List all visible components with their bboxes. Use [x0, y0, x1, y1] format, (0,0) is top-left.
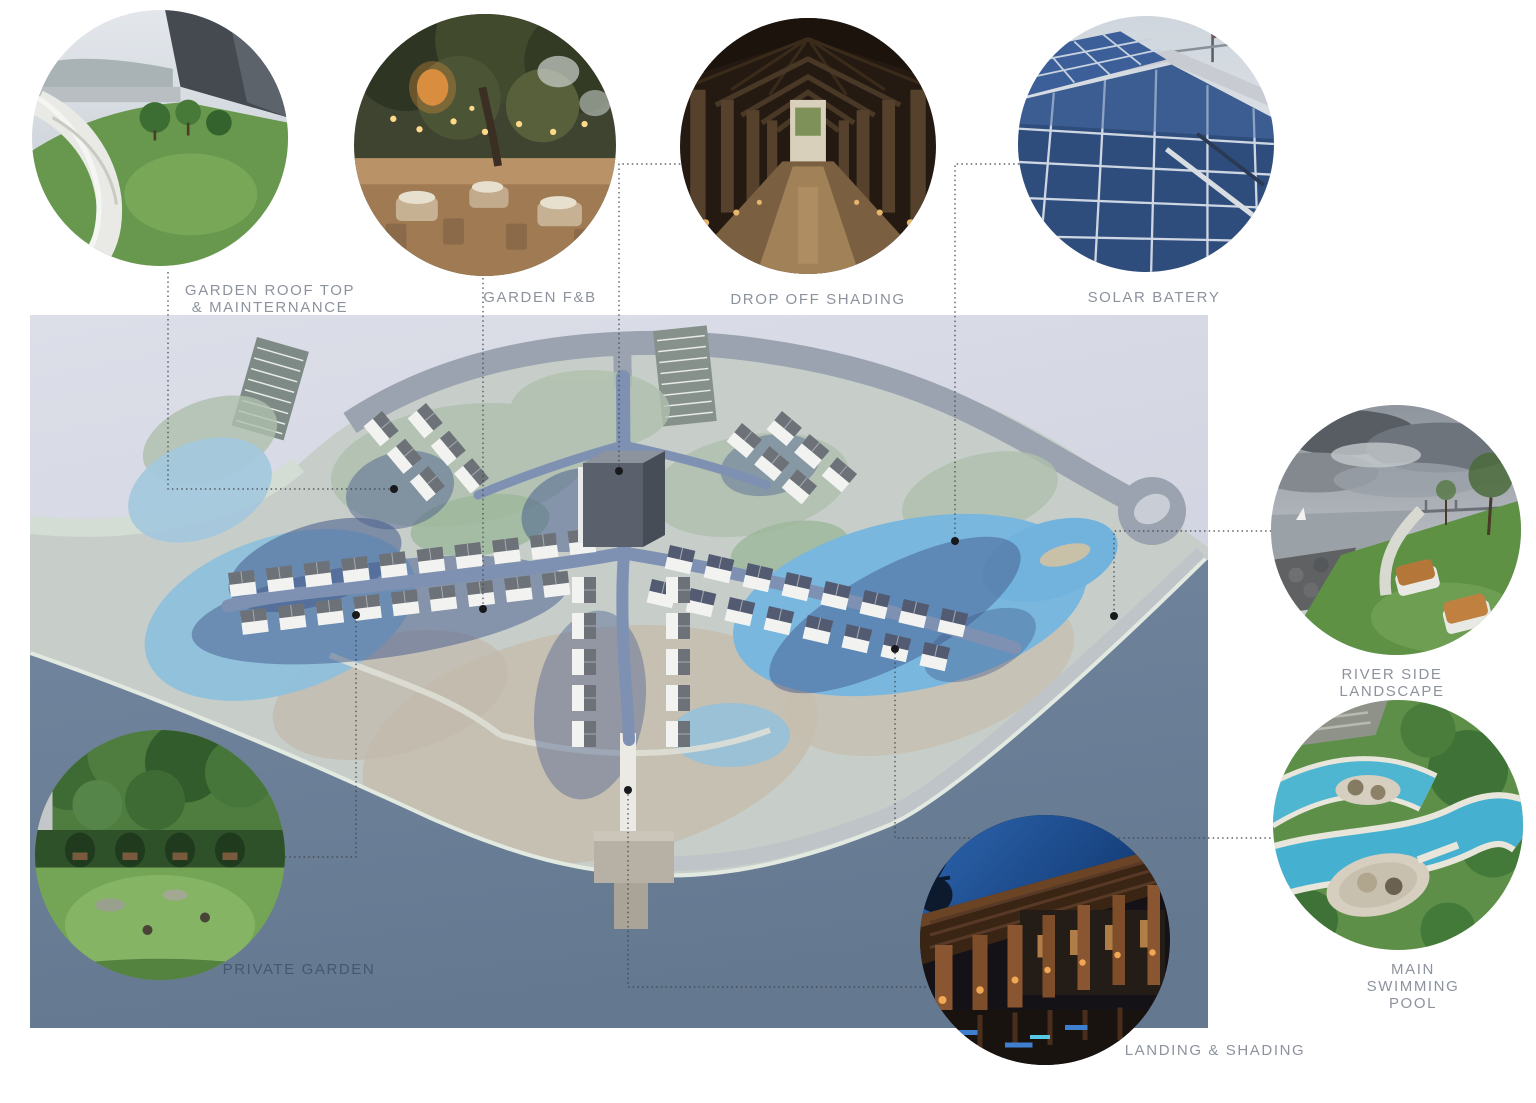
- label-landing-shading: LANDING & SHADING: [1125, 1042, 1306, 1059]
- label-garden-roof-top: GARDEN ROOF TOP & MAINTERNANCE: [185, 282, 355, 316]
- photo-garden-roof-top: [32, 10, 288, 266]
- label-main-swimming-pool: MAIN SWIMMING POOL: [1352, 961, 1475, 1012]
- photo-garden-fb: [354, 14, 616, 276]
- photo-main-swimming-pool: [1273, 700, 1523, 950]
- label-river-side-landscape: RIVER SIDE LANDSCAPE: [1320, 666, 1464, 700]
- photo-drop-off-shading: [680, 18, 936, 274]
- photo-private-garden: [35, 730, 285, 980]
- label-drop-off-shading: DROP OFF SHADING: [730, 291, 905, 308]
- label-private-garden: PRIVATE GARDEN: [223, 961, 376, 978]
- central-tower: [578, 451, 665, 547]
- presentation-slide: GARDEN ROOF TOP & MAINTERNANCE GARDEN F&…: [0, 0, 1536, 1103]
- photo-landing-shading: [920, 815, 1170, 1065]
- building-row-south-2: [666, 577, 690, 747]
- photo-river-side-landscape: [1271, 405, 1521, 655]
- building-row-south-1: [572, 577, 596, 747]
- label-garden-fb: GARDEN F&B: [483, 289, 597, 306]
- label-solar-batery: SOLAR BATERY: [1088, 289, 1221, 306]
- photo-solar-batery: [1018, 16, 1274, 272]
